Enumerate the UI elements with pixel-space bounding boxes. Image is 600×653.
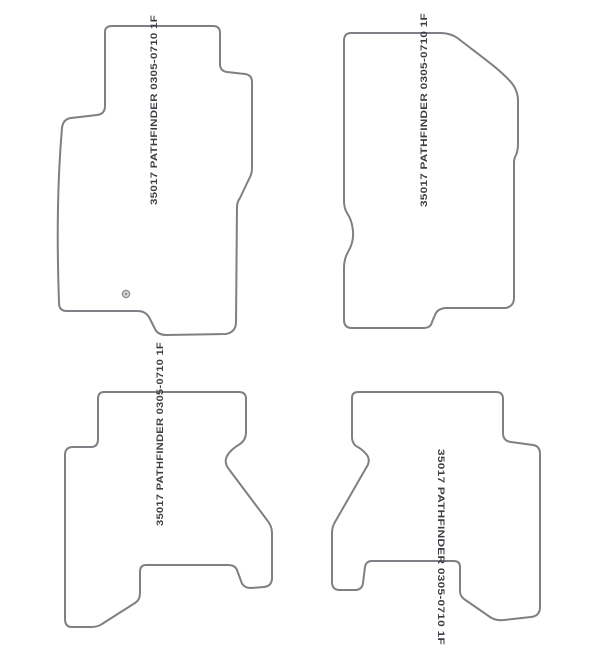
pattern-diagram: 35017 PATHFINDER 0305-0710 1F 35017 PATH… [0,0,600,653]
grommet-center-icon [125,293,127,295]
front-right-mat-outline [344,33,518,328]
front-right-mat-label: 35017 PATHFINDER 0305-0710 1F [419,13,429,207]
grommet-hole-marker [122,290,129,297]
floor-mat-pattern-sheet: 35017 PATHFINDER 0305-0710 1F 35017 PATH… [0,0,600,653]
rear-right-mat-outline [332,392,540,620]
rear-left-mat-outline [65,392,272,627]
rear-right-mat-label: 35017 PATHFINDER 0305-0710 1F [436,449,446,645]
rear-left-mat-label: 35017 PATHFINDER 0305-0710 1F [155,342,165,526]
front-left-mat-label: 35017 PATHFINDER 0305-0710 1F [149,15,159,205]
